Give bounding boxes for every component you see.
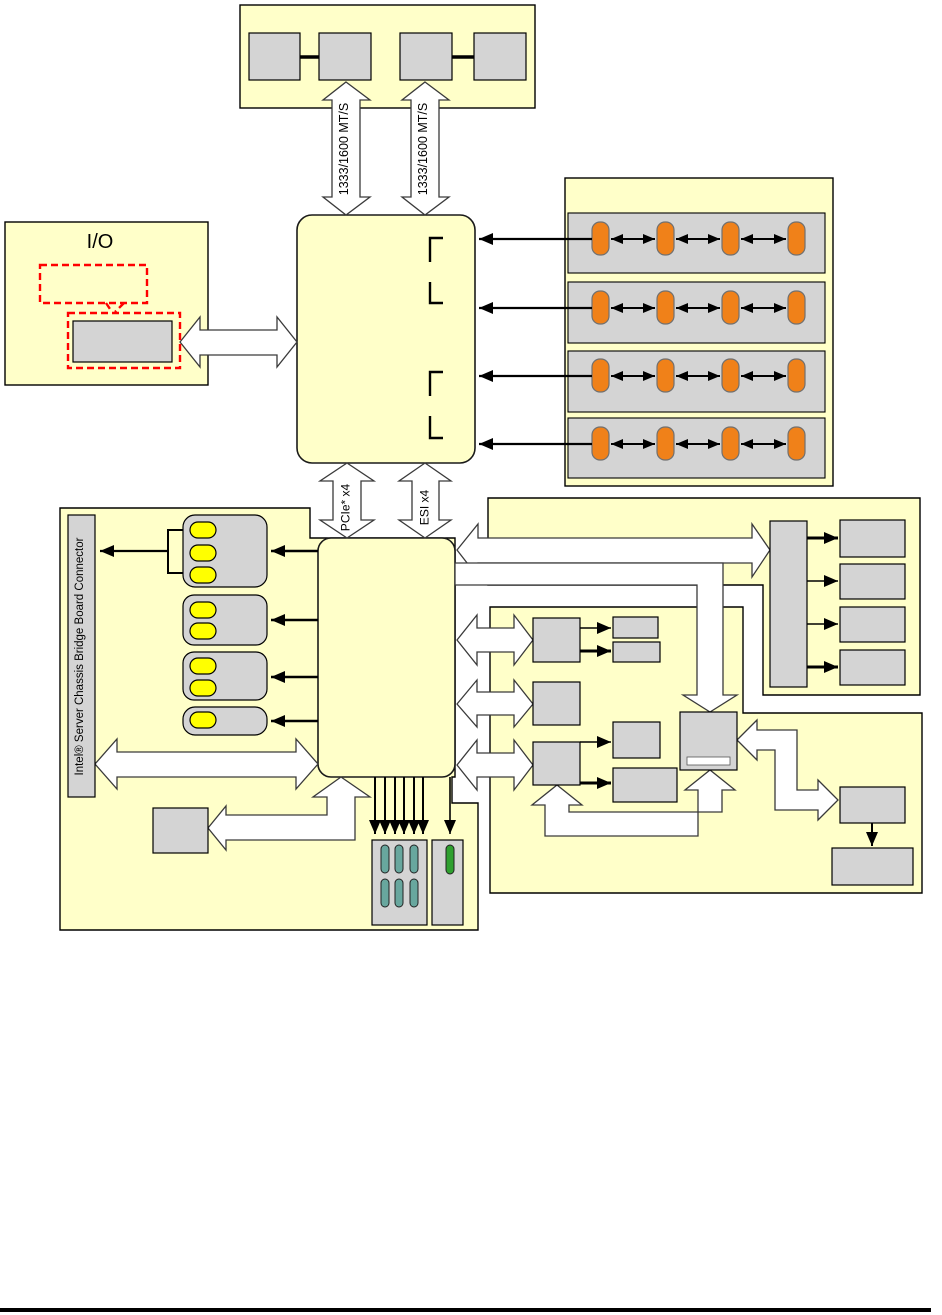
peripheral-block (840, 607, 905, 642)
dimm-slot (722, 359, 739, 392)
io-device-block (73, 321, 172, 362)
pch-block (318, 538, 455, 777)
dimm-slot (788, 359, 805, 392)
port (190, 658, 216, 674)
dimm-slot (722, 427, 739, 460)
right-peripheral-block-1 (840, 787, 905, 823)
pin (381, 879, 389, 907)
memory-module (400, 33, 452, 80)
port (190, 623, 216, 639)
peripheral-block (613, 768, 677, 802)
page-footer-rule (0, 1308, 931, 1312)
memory-bus-speed-label-b: 1333/1600 MT/S (416, 84, 432, 214)
io-box-title: I/O (5, 231, 195, 254)
peripheral-block (613, 722, 660, 758)
memory-module (319, 33, 371, 80)
dimm-slot (788, 291, 805, 324)
right-peripheral-block-2 (832, 848, 913, 885)
memory-module (474, 33, 526, 80)
dimm-slot (592, 222, 609, 255)
io-bus-arrow (180, 317, 297, 367)
port (190, 522, 216, 538)
pin (395, 879, 403, 907)
dimm-slot (657, 427, 674, 460)
peripheral-block (840, 564, 905, 599)
dimm-slot (722, 222, 739, 255)
peripheral-block (840, 520, 905, 557)
block-diagram-page: I/O 1333/1600 MT/S 1333/1600 MT/S PCIe* … (0, 0, 942, 1315)
port (190, 602, 216, 618)
memory-bus-speed-label-a: 1333/1600 MT/S (337, 84, 353, 214)
dimm-slot (657, 291, 674, 324)
port (190, 545, 216, 561)
controller-block-2 (533, 682, 580, 725)
controller-block-1 (533, 618, 580, 662)
dimm-slot (788, 427, 805, 460)
bmc-slot (687, 757, 730, 765)
cpu-block (297, 215, 475, 463)
pin (446, 845, 454, 874)
peripheral-block (613, 617, 658, 638)
pcie-bus-label: PCIe* x4 (339, 473, 354, 543)
port (190, 567, 216, 583)
peripheral-block (613, 642, 660, 662)
esi-bus-label: ESI x4 (418, 473, 433, 543)
chassis-bridge-connector-label: Intel® Server Chassis Bridge Board Conne… (74, 514, 89, 799)
pin (395, 845, 403, 873)
pin (410, 845, 418, 873)
dimm-slot (722, 291, 739, 324)
memory-module (249, 33, 300, 80)
dimm-slot (788, 222, 805, 255)
block-diagram (0, 0, 942, 1315)
port (190, 712, 216, 728)
pin (381, 845, 389, 873)
peripheral-block (840, 650, 905, 685)
port (190, 680, 216, 696)
dimm-slot (657, 359, 674, 392)
pin (410, 879, 418, 907)
io-hub-block (770, 521, 807, 687)
dimm-slot (657, 222, 674, 255)
dimm-slot (592, 427, 609, 460)
controller-block-3 (533, 742, 580, 785)
dimm-slot (592, 291, 609, 324)
dimm-slot (592, 359, 609, 392)
aux-module-block (153, 808, 208, 853)
